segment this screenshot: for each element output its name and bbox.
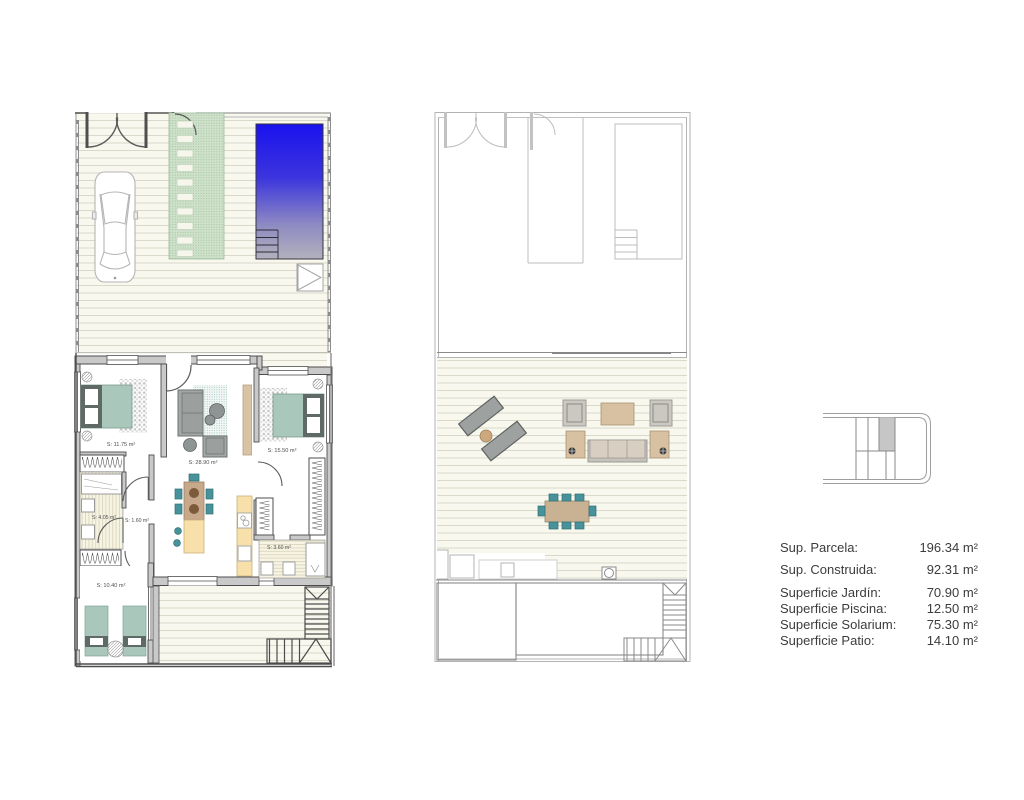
svg-text:S: 10.40 m²: S: 10.40 m² [97, 583, 126, 589]
svg-text:14.10 m²: 14.10 m² [927, 633, 979, 648]
svg-text:S: 11.75 m²: S: 11.75 m² [107, 442, 136, 448]
svg-text:S: 15.50 m²: S: 15.50 m² [268, 448, 297, 454]
svg-text:Superficie Piscina:: Superficie Piscina: [780, 601, 887, 616]
svg-text:S: 28.90 m²: S: 28.90 m² [189, 460, 218, 466]
svg-text:Sup. Parcela:: Sup. Parcela: [780, 540, 858, 555]
svg-text:Superficie Solarium:: Superficie Solarium: [780, 617, 896, 632]
svg-text:196.34 m²: 196.34 m² [919, 540, 978, 555]
svg-text:12.50 m²: 12.50 m² [927, 601, 979, 616]
svg-text:S: 1.60 m²: S: 1.60 m² [125, 518, 149, 524]
svg-text:75.30 m²: 75.30 m² [927, 617, 979, 632]
svg-text:Sup. Construida:: Sup. Construida: [780, 562, 877, 577]
svg-text:Superficie Patio:: Superficie Patio: [780, 633, 875, 648]
svg-text:92.31 m²: 92.31 m² [927, 562, 979, 577]
svg-text:70.90 m²: 70.90 m² [927, 585, 979, 600]
svg-text:S: 3.60 m²: S: 3.60 m² [267, 545, 291, 551]
svg-text:Superficie Jardín:: Superficie Jardín: [780, 585, 881, 600]
